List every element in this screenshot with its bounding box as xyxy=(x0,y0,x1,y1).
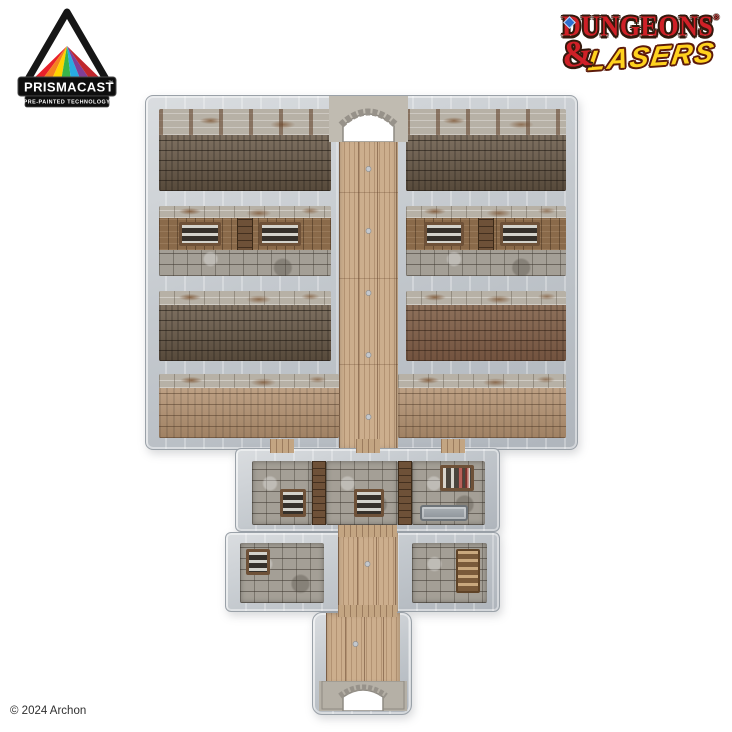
terrain-cellrow2-block xyxy=(225,532,500,612)
corridor-passage xyxy=(338,605,397,617)
prison-cell-b1 xyxy=(240,543,324,603)
room-wall-face xyxy=(159,291,331,305)
prismacast-logo: PRISMACAST ™ PRE-PAINTED TECHNOLOGY xyxy=(16,6,118,112)
room-top-right-1 xyxy=(406,109,566,191)
prison-cell-b2 xyxy=(412,543,487,603)
corridor-floor xyxy=(339,138,398,451)
cell-divider xyxy=(312,461,326,525)
cell-grate xyxy=(179,222,221,246)
corridor-passage xyxy=(338,525,397,537)
cell-room-right xyxy=(406,206,566,276)
doorway xyxy=(356,439,380,453)
prison-cell-a2 xyxy=(326,461,398,525)
room-right-4 xyxy=(398,374,566,438)
wood-floor xyxy=(398,388,566,438)
room-wall-face xyxy=(159,374,339,388)
south-archway xyxy=(319,681,407,711)
room-right-3 xyxy=(406,291,566,361)
corridor-floor xyxy=(338,533,398,613)
copyright-text: © 2024 Archon xyxy=(10,705,86,717)
wood-floor xyxy=(159,135,331,191)
terrain-cellrow-block xyxy=(235,448,500,532)
cell-grate xyxy=(500,222,540,246)
terrain-photo xyxy=(145,95,578,715)
room-left-3 xyxy=(159,291,331,361)
stone-floor xyxy=(406,250,566,276)
doorway xyxy=(441,439,465,453)
prison-cell-a1 xyxy=(252,461,312,525)
cell-room-left xyxy=(159,206,331,276)
wood-floor xyxy=(406,305,566,361)
room-wall-face xyxy=(159,109,331,135)
cell-grate xyxy=(280,489,306,517)
dungeons-and-lasers-logo: DUNGEONS® &LASERS xyxy=(562,12,726,76)
wood-floor xyxy=(159,388,339,438)
room-wall-face xyxy=(406,109,566,135)
prismacast-prism-icon: PRISMACAST ™ PRE-PAINTED TECHNOLOGY xyxy=(16,6,118,112)
room-wall-face xyxy=(406,206,566,218)
terrain-top-block xyxy=(145,95,578,450)
room-wall-face xyxy=(398,374,566,388)
registered-mark: ® xyxy=(713,13,719,22)
wood-floor xyxy=(406,135,566,191)
wooden-ladder xyxy=(456,549,480,593)
dl-ampersand: & xyxy=(560,32,594,78)
floor-hatch xyxy=(420,505,468,521)
terrain-stem-block xyxy=(312,612,412,715)
product-photo-page: PRISMACAST ™ PRE-PAINTED TECHNOLOGY DUNG… xyxy=(0,0,732,732)
north-archway xyxy=(329,96,408,142)
cell-grate xyxy=(246,549,270,575)
prismacast-trademark: ™ xyxy=(108,80,113,86)
prison-cell-a3 xyxy=(412,461,485,525)
room-wall-face xyxy=(159,206,331,218)
doorway xyxy=(270,439,294,453)
room-left-4 xyxy=(159,374,339,438)
bloodstained-grate xyxy=(440,465,474,491)
corridor-floor xyxy=(326,613,400,685)
wood-floor xyxy=(159,305,331,361)
cell-grate xyxy=(354,489,384,517)
room-top-left-1 xyxy=(159,109,331,191)
cell-divider xyxy=(398,461,412,525)
room-wall-face xyxy=(406,291,566,305)
prismacast-wordmark: PRISMACAST xyxy=(24,80,114,95)
cell-grate xyxy=(424,222,464,246)
cell-grate xyxy=(259,222,301,246)
stone-floor xyxy=(159,250,331,276)
prismacast-tagline: PRE-PAINTED TECHNOLOGY xyxy=(24,100,111,106)
